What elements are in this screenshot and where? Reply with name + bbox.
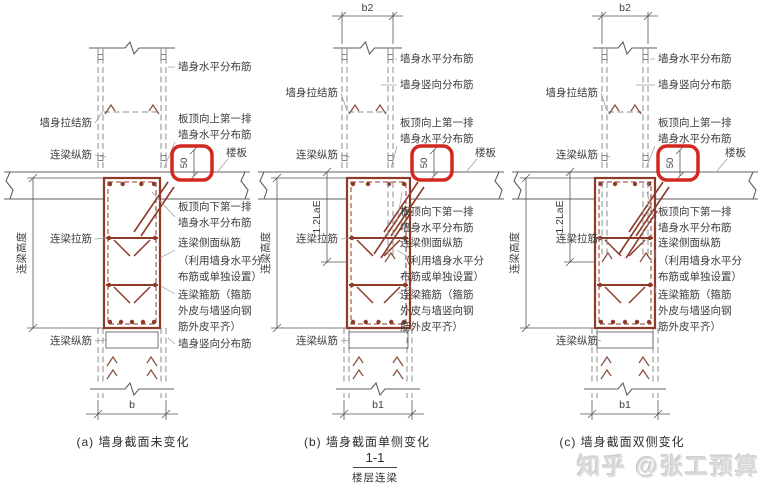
offset-50-highlight: [412, 146, 452, 180]
dim-offset-50: 50: [419, 158, 430, 169]
panel-a-drawing: 连梁高度b50墙身水平分布筋板顶向上第一排墙身水平分布筋板顶向下第一排墙身水平分…: [0, 0, 254, 430]
panel-c-drawing: b21.2LaE连梁高度b150墙身水平分布筋墙身竖向分布筋板顶向上第一排墙身水…: [508, 0, 762, 430]
label-beam_side_bars_1: 连梁侧面纵筋: [400, 236, 463, 249]
label-floor_slab: 楼板: [475, 146, 496, 159]
dim-bottom-width: b1: [619, 399, 631, 411]
label-first_row_above_slab_1: 板顶向上第一排: [178, 112, 252, 125]
panel-b-drawing: b21.2LaE连梁高度b150墙身水平分布筋墙身竖向分布筋板顶向上第一排墙身水…: [254, 0, 508, 430]
label-floor_slab: 楼板: [226, 146, 247, 159]
label-beam_longitudinal_bars: 连梁纵筋: [296, 148, 338, 161]
label-beam_tie_bars: 连梁拉筋: [556, 232, 598, 245]
label-first_row_below_slab_2: 墙身水平分布筋: [658, 221, 732, 234]
section-label: 楼层连梁: [341, 470, 409, 485]
offset-50-highlight: [658, 146, 698, 180]
dimension-lines: 连梁高度b50: [15, 146, 198, 420]
label-beam_side_bars_2: （利用墙身水平分: [658, 254, 742, 267]
dim-top-width: b2: [619, 2, 631, 14]
label-beam_longitudinal_bars: 连梁纵筋: [556, 334, 598, 347]
label-wall_horizontal_bars: 墙身水平分布筋: [400, 52, 474, 65]
label-first_row_above_slab_1: 板顶向上第一排: [400, 116, 474, 129]
dim-top-width: b2: [362, 2, 374, 14]
label-beam_stirrups_2: 外皮与墙竖向钢: [400, 304, 474, 317]
label-beam_tie_bars: 连梁拉筋: [296, 232, 338, 245]
label-beam_side_bars_1: 连梁侧面纵筋: [178, 236, 241, 249]
dim-beam-height: 连梁高度: [259, 232, 272, 274]
label-beam_tie_bars: 连梁拉筋: [50, 232, 92, 245]
label-beam_side_bars_3: 布筋或单独设置）: [658, 270, 742, 283]
label-beam_side_bars_1: 连梁侧面纵筋: [658, 236, 721, 249]
label-wall_horizontal_bars: 墙身水平分布筋: [658, 52, 732, 65]
label-beam_longitudinal_bars: 连梁纵筋: [50, 148, 92, 161]
label-wall_tie_bars: 墙身拉结筋: [546, 86, 599, 99]
section-mark: 1-1 楼层连梁: [341, 449, 409, 485]
label-first_row_below_slab_1: 板顶向下第一排: [400, 205, 474, 218]
label-wall_vertical_bars: 墙身竖向分布筋: [178, 337, 252, 350]
label-wall_vertical_bars: 墙身竖向分布筋: [400, 78, 474, 91]
label-first_row_above_slab_2: 墙身水平分布筋: [178, 128, 252, 141]
label-beam_stirrups_2: 外皮与墙竖向钢: [658, 304, 732, 317]
label-first_row_below_slab_1: 板顶向下第一排: [658, 205, 732, 218]
dim-anchorage-length: 1.2LaE: [554, 200, 566, 233]
label-beam_stirrups_3: 筋外皮平齐）: [400, 320, 463, 333]
dim-offset-50: 50: [665, 158, 676, 169]
label-wall_vertical_bars: 墙身竖向分布筋: [658, 78, 732, 91]
dim-offset-50: 50: [179, 158, 190, 169]
label-first_row_below_slab_2: 墙身水平分布筋: [178, 216, 252, 229]
label-first_row_above_slab_2: 墙身水平分布筋: [658, 132, 732, 145]
label-beam_side_bars_3: 布筋或单独设置）: [178, 270, 262, 283]
label-beam_side_bars_2: （利用墙身水平分: [178, 254, 262, 267]
label-first_row_below_slab_1: 板顶向下第一排: [178, 200, 252, 213]
label-first_row_below_slab_2: 墙身水平分布筋: [400, 221, 474, 234]
label-beam_stirrups_3: 筋外皮平齐）: [658, 320, 721, 333]
beam-rebar-linework: [104, 178, 174, 328]
label-beam_stirrups_1: 连梁箍筋（箍筋: [178, 288, 252, 301]
panel-b-caption: (b) 墙身截面单侧变化: [304, 433, 430, 450]
dim-bottom-width: b: [129, 399, 135, 411]
label-wall_horizontal_bars: 墙身水平分布筋: [178, 60, 252, 73]
panel-a-caption: (a) 墙身截面未变化: [76, 433, 189, 450]
dim-anchorage-length: 1.2LaE: [311, 200, 323, 233]
label-beam_stirrups_1: 连梁箍筋（箍筋: [400, 288, 474, 301]
label-first_row_above_slab_2: 墙身水平分布筋: [400, 132, 474, 145]
dim-beam-height: 连梁高度: [508, 232, 521, 274]
label-floor_slab: 楼板: [725, 146, 746, 159]
label-beam_stirrups_2: 外皮与墙竖向钢: [178, 304, 252, 317]
label-beam_longitudinal_bars: 连梁纵筋: [50, 334, 92, 347]
section-number: 1-1: [353, 450, 397, 468]
text-labels: 墙身水平分布筋板顶向上第一排墙身水平分布筋板顶向下第一排墙身水平分布筋连梁侧面纵…: [40, 60, 263, 350]
label-beam_stirrups_1: 连梁箍筋（箍筋: [658, 288, 732, 301]
label-beam_stirrups_3: 筋外皮平齐）: [178, 320, 241, 333]
drawing-canvas: 连梁高度b50墙身水平分布筋板顶向上第一排墙身水平分布筋板顶向下第一排墙身水平分…: [0, 0, 762, 488]
watermark: 知乎 @张工预算: [577, 447, 760, 481]
label-beam_longitudinal_bars: 连梁纵筋: [296, 334, 338, 347]
label-first_row_above_slab_1: 板顶向上第一排: [658, 116, 732, 129]
dim-beam-height: 连梁高度: [15, 232, 28, 274]
label-beam_side_bars_2: （利用墙身水平分: [400, 254, 484, 267]
label-wall_tie_bars: 墙身拉结筋: [40, 116, 93, 129]
label-beam_side_bars_3: 布筋或单独设置）: [400, 270, 484, 283]
offset-50-highlight: [172, 146, 212, 180]
dim-bottom-width: b1: [372, 399, 384, 411]
label-beam_longitudinal_bars: 连梁纵筋: [556, 148, 598, 161]
label-wall_tie_bars: 墙身拉结筋: [286, 86, 339, 99]
